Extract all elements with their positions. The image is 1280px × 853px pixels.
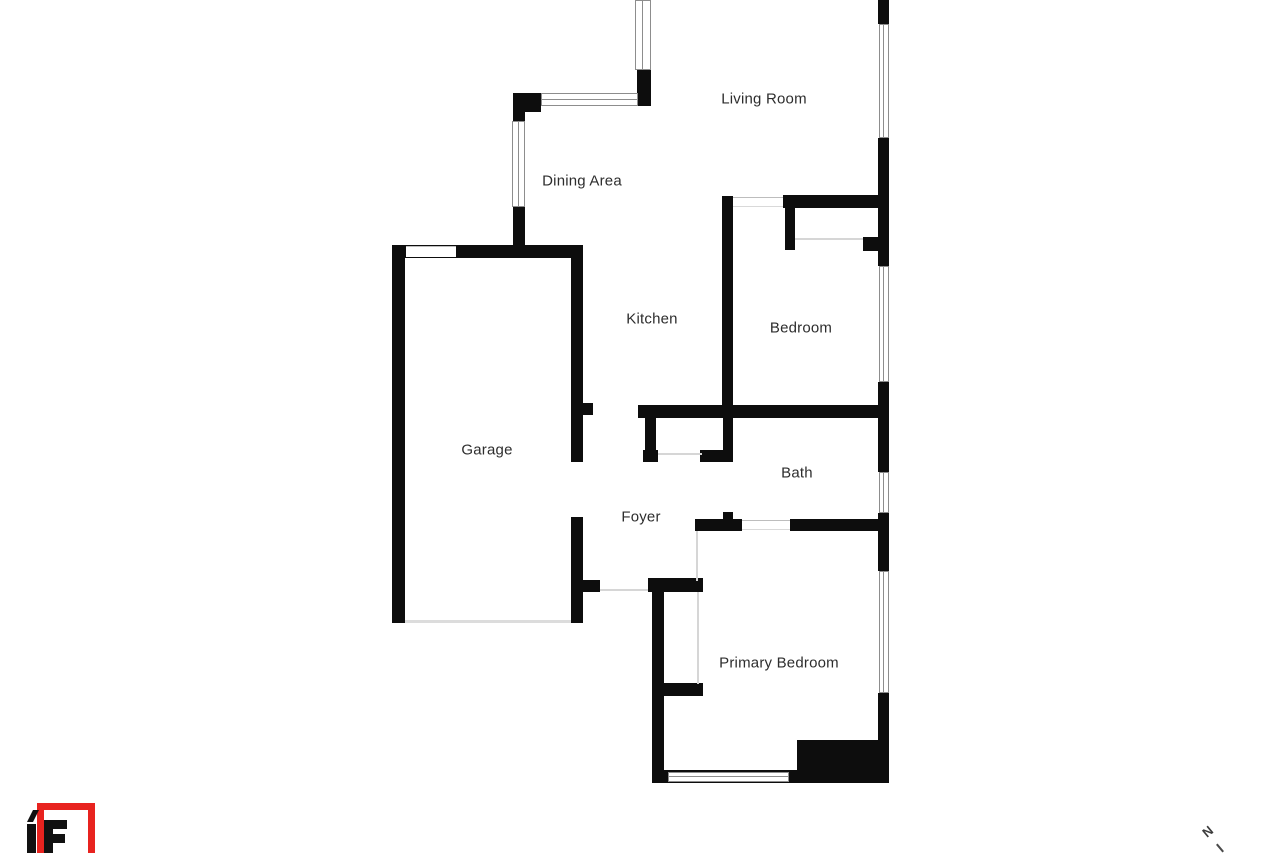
- wall-primary-utility-block: [797, 740, 878, 777]
- room-label-garage: Garage: [461, 442, 512, 459]
- floor-plan-canvas: Living Room Dining Area Kitchen Bedroom …: [0, 0, 1280, 853]
- wall-foyer-closet-left: [645, 418, 656, 452]
- wall-right-exterior: [878, 138, 889, 266]
- wall-bedroom-closet-top: [783, 195, 879, 208]
- logo-text: 1F: [0, 0, 1, 1]
- room-label-bedroom: Bedroom: [770, 320, 832, 337]
- window: [879, 24, 889, 138]
- wall-garage-right-upper: [571, 251, 583, 462]
- wall-bath-tab: [723, 512, 733, 521]
- window: [879, 266, 889, 382]
- closet-line: [658, 453, 702, 455]
- wall-foyer-closet-right: [723, 413, 733, 452]
- door-swing-line: [696, 531, 698, 581]
- wall-primary-closet-top: [648, 578, 703, 592]
- wall-garage-right-lower: [571, 517, 583, 623]
- window: [879, 472, 889, 513]
- compass-needle-icon: [1216, 844, 1224, 853]
- wall-tab: [583, 580, 600, 592]
- entry-door-line: [600, 589, 648, 591]
- wall-right-exterior: [878, 513, 889, 571]
- wall-right-exterior: [878, 693, 889, 783]
- room-label-foyer: Foyer: [621, 509, 660, 526]
- window: [512, 121, 525, 207]
- wall-main-horizontal: [638, 405, 888, 418]
- door-opening: [742, 520, 790, 530]
- window: [879, 571, 889, 693]
- window: [635, 0, 651, 70]
- wall-primary-closet-bottom: [652, 683, 703, 696]
- room-label-dining-area: Dining Area: [542, 173, 622, 190]
- wall-segment: [637, 70, 651, 106]
- wall-bath-bottom-left: [695, 519, 742, 531]
- wall-garage-left: [392, 245, 405, 623]
- door-opening: [733, 197, 783, 207]
- closet-line: [697, 592, 699, 684]
- room-label-primary-bedroom: Primary Bedroom: [719, 655, 839, 672]
- window: [668, 772, 789, 782]
- wall-bath-bottom-right: [790, 519, 878, 531]
- room-label-kitchen: Kitchen: [626, 311, 677, 328]
- compass-north-label: N: [1199, 823, 1216, 841]
- logo-monogram-1f-icon: [22, 809, 84, 853]
- wall-bedroom-closet-left: [785, 206, 795, 250]
- door-opening: [406, 246, 456, 257]
- wall-bedroom-closet-stub: [863, 237, 879, 251]
- window: [541, 93, 638, 106]
- room-label-living-room: Living Room: [721, 91, 807, 108]
- wall-foyer-closet-foot: [643, 450, 658, 462]
- closet-line: [795, 238, 863, 240]
- garage-door-line: [405, 620, 571, 623]
- wall-kitchen-bedroom: [722, 196, 733, 413]
- room-label-bath: Bath: [781, 465, 813, 482]
- wall-right-exterior: [878, 382, 889, 472]
- wall-right-exterior: [878, 0, 889, 24]
- wall-primary-left: [652, 578, 664, 783]
- wall-tab: [583, 403, 593, 415]
